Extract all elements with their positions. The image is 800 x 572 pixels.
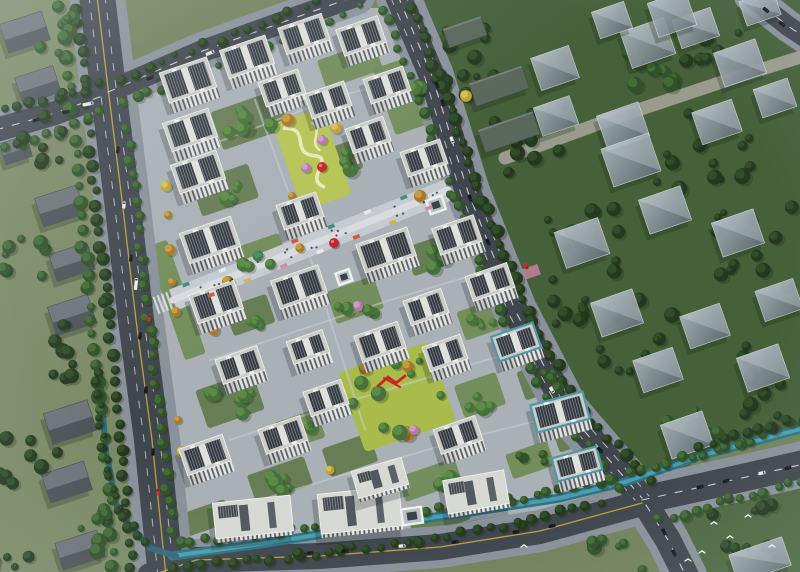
aerial-masterplan-render <box>0 0 800 572</box>
masterplan-aerial-view <box>0 0 800 572</box>
atmosphere-overlay <box>0 0 800 572</box>
